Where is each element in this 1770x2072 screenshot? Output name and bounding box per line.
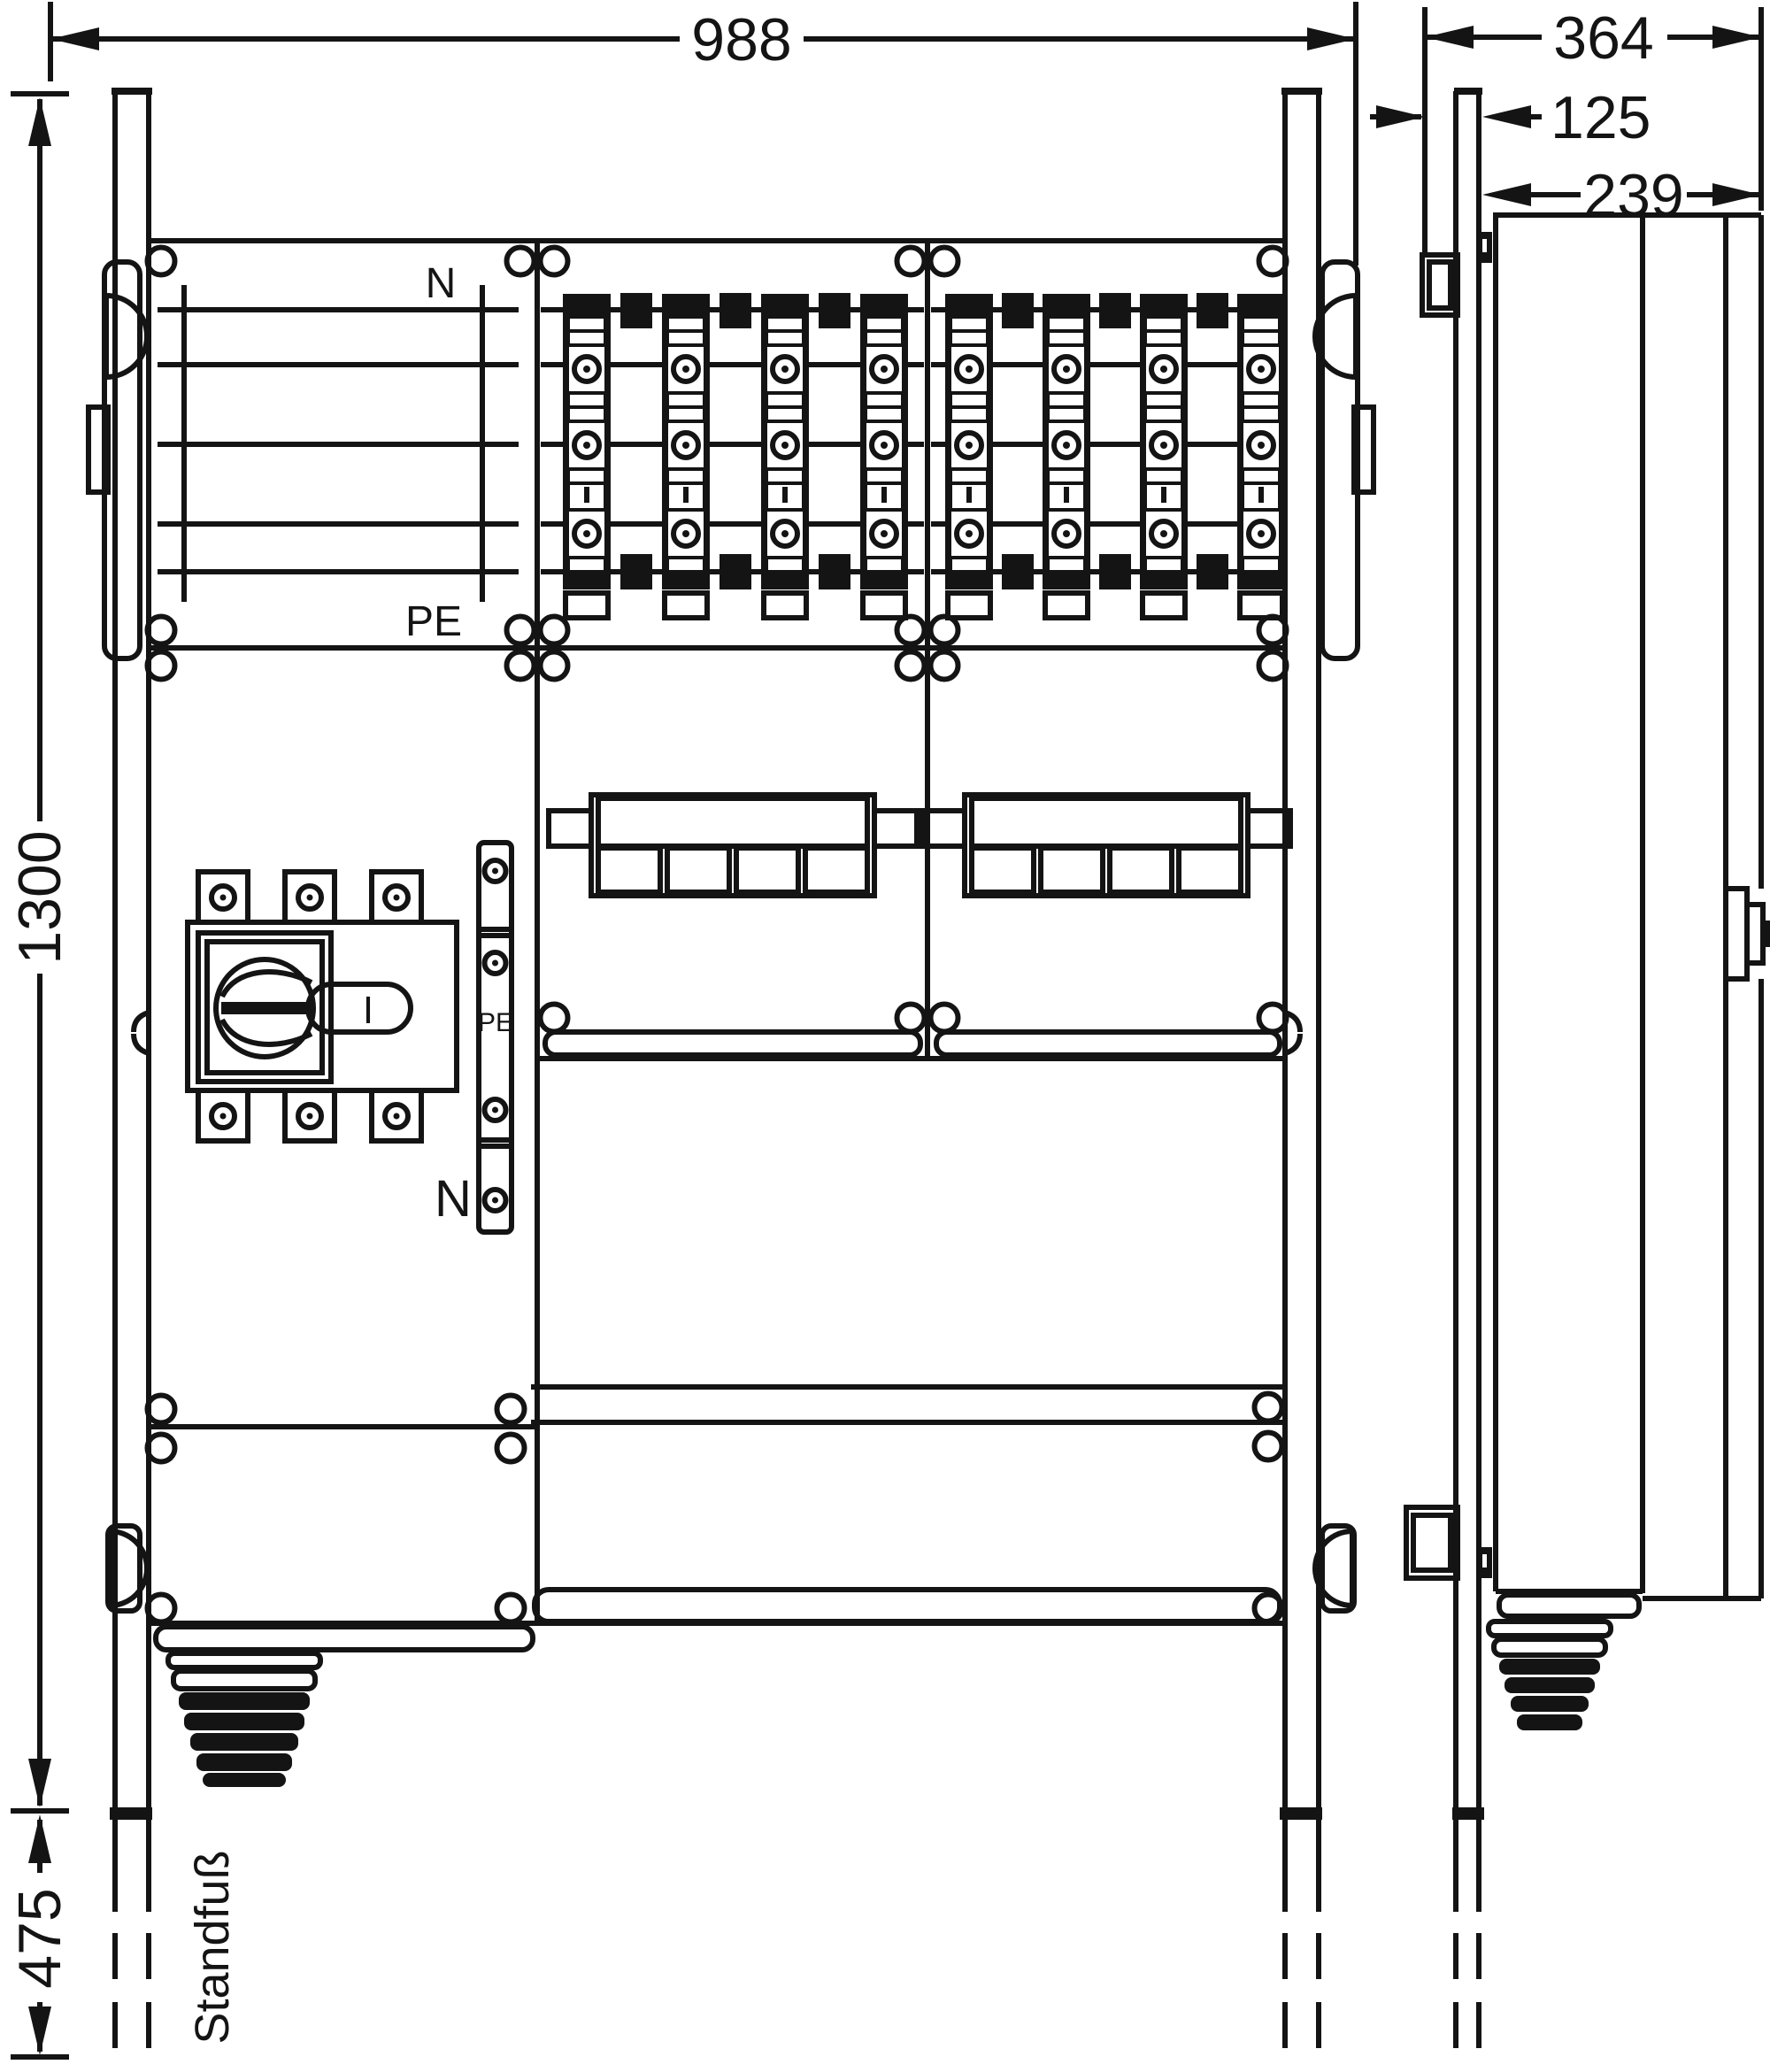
busbar-clamp bbox=[819, 293, 850, 328]
arrowhead-left bbox=[1425, 26, 1474, 49]
busbar-clamp bbox=[1197, 293, 1228, 328]
busbar-clamp bbox=[1002, 293, 1034, 328]
fuse-strip bbox=[945, 294, 993, 618]
cabinet-drawing: 988 1300 475 bbox=[0, 0, 1770, 2072]
dimension-wall-clearance-125: 125 bbox=[1370, 84, 1651, 151]
busbar-field: N PE bbox=[158, 260, 519, 645]
fuse-panel-2 bbox=[931, 293, 1285, 618]
bottom-flange bbox=[1499, 1595, 1639, 1616]
dim-body-depth-value: 239 bbox=[1583, 162, 1683, 229]
cable-gland-front bbox=[168, 1653, 320, 1787]
fuse-strip bbox=[1237, 294, 1285, 618]
fuse-strip bbox=[662, 294, 710, 618]
busbar-clamp bbox=[720, 293, 751, 328]
arrowhead-right bbox=[1712, 183, 1761, 206]
bottom-flange bbox=[535, 1590, 1280, 1621]
dim-depth-total-value: 364 bbox=[1553, 4, 1653, 72]
enclosure-grid bbox=[148, 241, 1287, 1650]
wall-bracket-inner bbox=[1429, 262, 1451, 308]
pe-n-terminal-strip: PE N bbox=[435, 843, 513, 1232]
neutral-bus-label: N bbox=[426, 260, 457, 307]
arrowhead-left bbox=[1482, 105, 1531, 128]
fuse-strip bbox=[761, 294, 809, 618]
arrowhead-up bbox=[28, 97, 51, 146]
technical-drawing-sheet: 988 1300 475 bbox=[0, 0, 1770, 2072]
bottom-flange bbox=[545, 1032, 920, 1055]
pe-strip-label: PE bbox=[478, 1008, 513, 1037]
rail-foot-cap bbox=[110, 1807, 152, 1820]
busbar-clamp bbox=[1197, 554, 1228, 589]
fuse-panel-1 bbox=[541, 293, 924, 618]
rail-foot-cap bbox=[1280, 1807, 1322, 1820]
fuse-strip bbox=[1140, 294, 1188, 618]
arrowhead-right bbox=[1376, 105, 1425, 128]
busbar-clamp bbox=[1099, 554, 1131, 589]
stand-foot-dashed-lines bbox=[115, 1820, 1319, 2072]
wall-bracket-inner bbox=[1413, 1515, 1451, 1570]
arrowhead-down bbox=[28, 2007, 51, 2055]
arrowhead-left bbox=[50, 27, 99, 50]
dimension-stand-475: 475 bbox=[6, 1814, 73, 2057]
pe-bus-label: PE bbox=[405, 598, 462, 645]
cable-gland-side bbox=[1489, 1621, 1611, 1730]
side-view: 364 125 239 bbox=[1370, 4, 1770, 2072]
dim-height-value: 1300 bbox=[6, 830, 73, 964]
busbar-clamp bbox=[1002, 554, 1034, 589]
side-mounting-plate bbox=[1406, 88, 1492, 2072]
arrowhead-right bbox=[1712, 26, 1761, 49]
arrowhead-up bbox=[28, 1814, 51, 1863]
door-handle bbox=[1726, 889, 1770, 979]
terminal-comb-2 bbox=[922, 795, 1290, 896]
dim-stand-value: 475 bbox=[6, 1888, 73, 1988]
bottom-flange bbox=[936, 1032, 1280, 1055]
fuse-strip bbox=[563, 294, 611, 618]
stand-foot-label: Standfuß bbox=[186, 1850, 239, 2044]
bottom-flange bbox=[156, 1627, 533, 1650]
busbar-clamp bbox=[1099, 293, 1131, 328]
main-switch: I bbox=[188, 872, 457, 1141]
plate-foot-cap bbox=[1452, 1807, 1484, 1820]
dim-wall-clearance-value: 125 bbox=[1551, 84, 1651, 151]
dimension-height-1300: 1300 bbox=[6, 94, 73, 1811]
switch-position-mark: I bbox=[363, 989, 373, 1032]
arrowhead-down bbox=[28, 1759, 51, 1807]
dim-width-value: 988 bbox=[691, 6, 791, 73]
comb-stub bbox=[874, 811, 917, 846]
dimension-body-depth-239: 239 bbox=[1482, 162, 1761, 229]
terminal-comb-1 bbox=[549, 795, 917, 896]
fuse-strip bbox=[860, 294, 908, 618]
front-view: 988 1300 475 bbox=[6, 2, 1374, 2072]
busbar-clamp bbox=[620, 554, 652, 589]
neutral-strip-label: N bbox=[435, 1170, 472, 1228]
comb-stub bbox=[549, 811, 591, 846]
dimension-width-988: 988 bbox=[50, 2, 1356, 266]
side-enclosure-body bbox=[1493, 212, 1770, 1616]
rotary-handle: I bbox=[216, 959, 411, 1057]
fuse-strip bbox=[1043, 294, 1090, 618]
arrowhead-left bbox=[1482, 183, 1531, 206]
busbar-clamp bbox=[819, 554, 850, 589]
arrowhead-right bbox=[1307, 27, 1356, 50]
busbar-clamp bbox=[720, 554, 751, 589]
busbar-clamp bbox=[620, 293, 652, 328]
